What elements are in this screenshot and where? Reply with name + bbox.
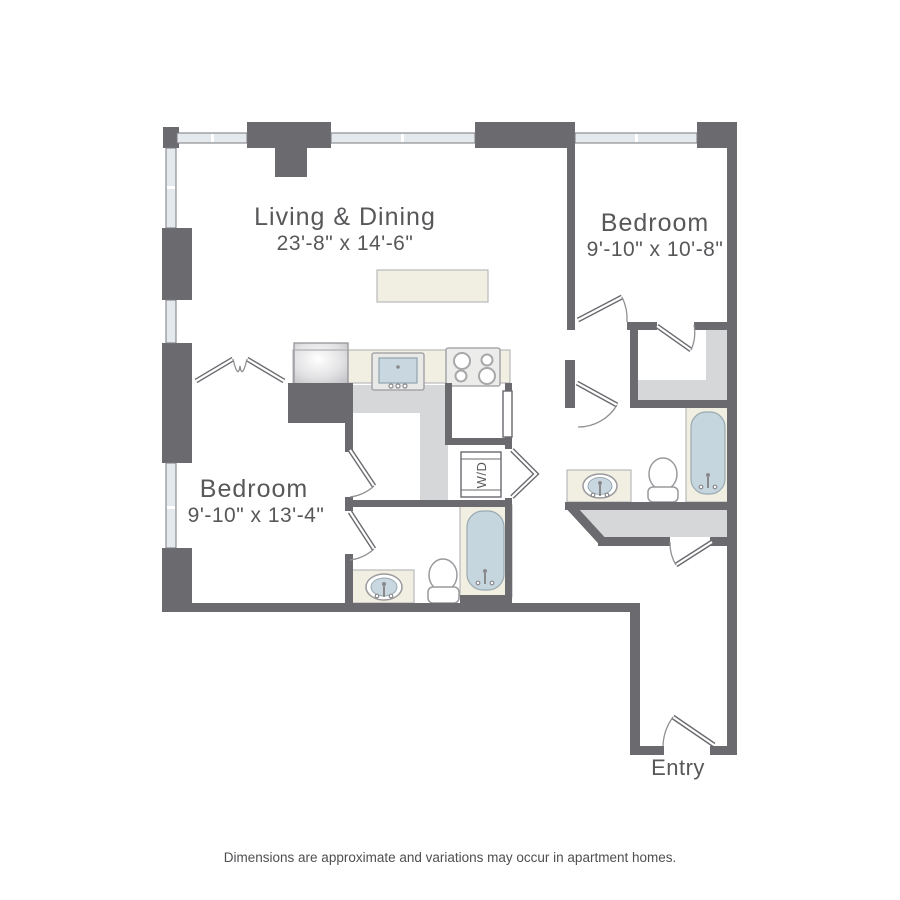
- wall-segment: [345, 554, 353, 603]
- wall-segment: [275, 148, 307, 177]
- vanity-sink: [567, 470, 631, 502]
- bathroom-right: [567, 406, 730, 502]
- kitchen: [293, 343, 510, 390]
- room-dims-bedroom-right: 9'-10" x 10'-8": [587, 238, 724, 261]
- bathroom-middle: [352, 505, 512, 603]
- door-swing: [663, 717, 673, 746]
- wall-segment: [565, 360, 575, 408]
- wall-segment: [247, 122, 331, 148]
- wall-segment: [162, 548, 192, 612]
- wall-segment: [162, 228, 192, 300]
- wall-segment: [345, 500, 512, 507]
- sliding-door: [503, 391, 512, 437]
- wall-segment: [630, 603, 640, 755]
- window: [166, 300, 176, 343]
- wall-segment: [727, 122, 737, 755]
- french-door-leaf: [196, 359, 233, 381]
- wall-segment: [627, 322, 657, 330]
- wall-segment: [505, 498, 512, 603]
- wall-segment: [445, 438, 512, 445]
- entry-label: Entry: [651, 755, 705, 780]
- toilet-icon: [648, 458, 678, 502]
- door-leaf: [676, 542, 712, 565]
- wall-segment: [445, 383, 452, 445]
- walkin-closet-shade: [337, 385, 448, 500]
- door-leaf: [578, 297, 622, 320]
- door-leaf: [657, 326, 691, 350]
- vanity-sink: [352, 570, 414, 603]
- wall-segment: [162, 343, 192, 463]
- door-leaf: [577, 383, 617, 405]
- wall-segment: [710, 746, 737, 755]
- wall-segment: [710, 537, 737, 546]
- door-leaf: [350, 450, 374, 486]
- room-dims-bedroom-left: 9'-10" x 13'-4": [188, 504, 325, 527]
- wd-label: W/D: [474, 462, 489, 489]
- stove-icon: [446, 348, 500, 386]
- floor-plan: W/D: [0, 0, 900, 900]
- room-label-living: Living & Dining: [254, 203, 436, 231]
- wall-segment: [694, 322, 737, 330]
- door-swing: [578, 405, 617, 427]
- wall-segment: [630, 746, 664, 755]
- toilet-icon: [428, 559, 459, 603]
- disclaimer-text: Dimensions are approximate and variation…: [224, 850, 676, 865]
- wall-segment: [565, 502, 737, 510]
- wall-segment: [567, 148, 575, 330]
- door-leaf: [350, 512, 374, 549]
- door-swing: [670, 542, 676, 565]
- wall-segment: [638, 400, 737, 408]
- entry-door-leaf: [673, 717, 714, 745]
- bifold-door: [512, 450, 536, 497]
- floor-plan-page: W/D: [0, 0, 900, 900]
- window: [166, 463, 176, 548]
- wall-segment: [598, 537, 670, 546]
- washer-dryer: W/D: [461, 452, 501, 497]
- room-label-bedroom-right: Bedroom: [601, 209, 709, 237]
- door-swing: [691, 325, 695, 350]
- room-dims-living: 23'-8" x 14'-6": [277, 232, 414, 255]
- room-label-bedroom-left: Bedroom: [200, 475, 308, 503]
- door-swing: [350, 486, 374, 497]
- wall-segment: [630, 330, 638, 408]
- wall-segment: [162, 603, 640, 612]
- french-door-meeting: [233, 359, 247, 372]
- wall-segment: [460, 595, 512, 605]
- dining-table: [377, 270, 488, 302]
- door-swing: [622, 297, 627, 322]
- french-door-leaf: [247, 359, 284, 381]
- kitchen-sink-icon: [372, 353, 424, 390]
- wall-segment: [345, 383, 353, 452]
- wall-segment: [475, 122, 575, 148]
- refrigerator-icon: [294, 343, 348, 384]
- door-swing: [350, 549, 374, 560]
- wall-segment: [288, 383, 350, 423]
